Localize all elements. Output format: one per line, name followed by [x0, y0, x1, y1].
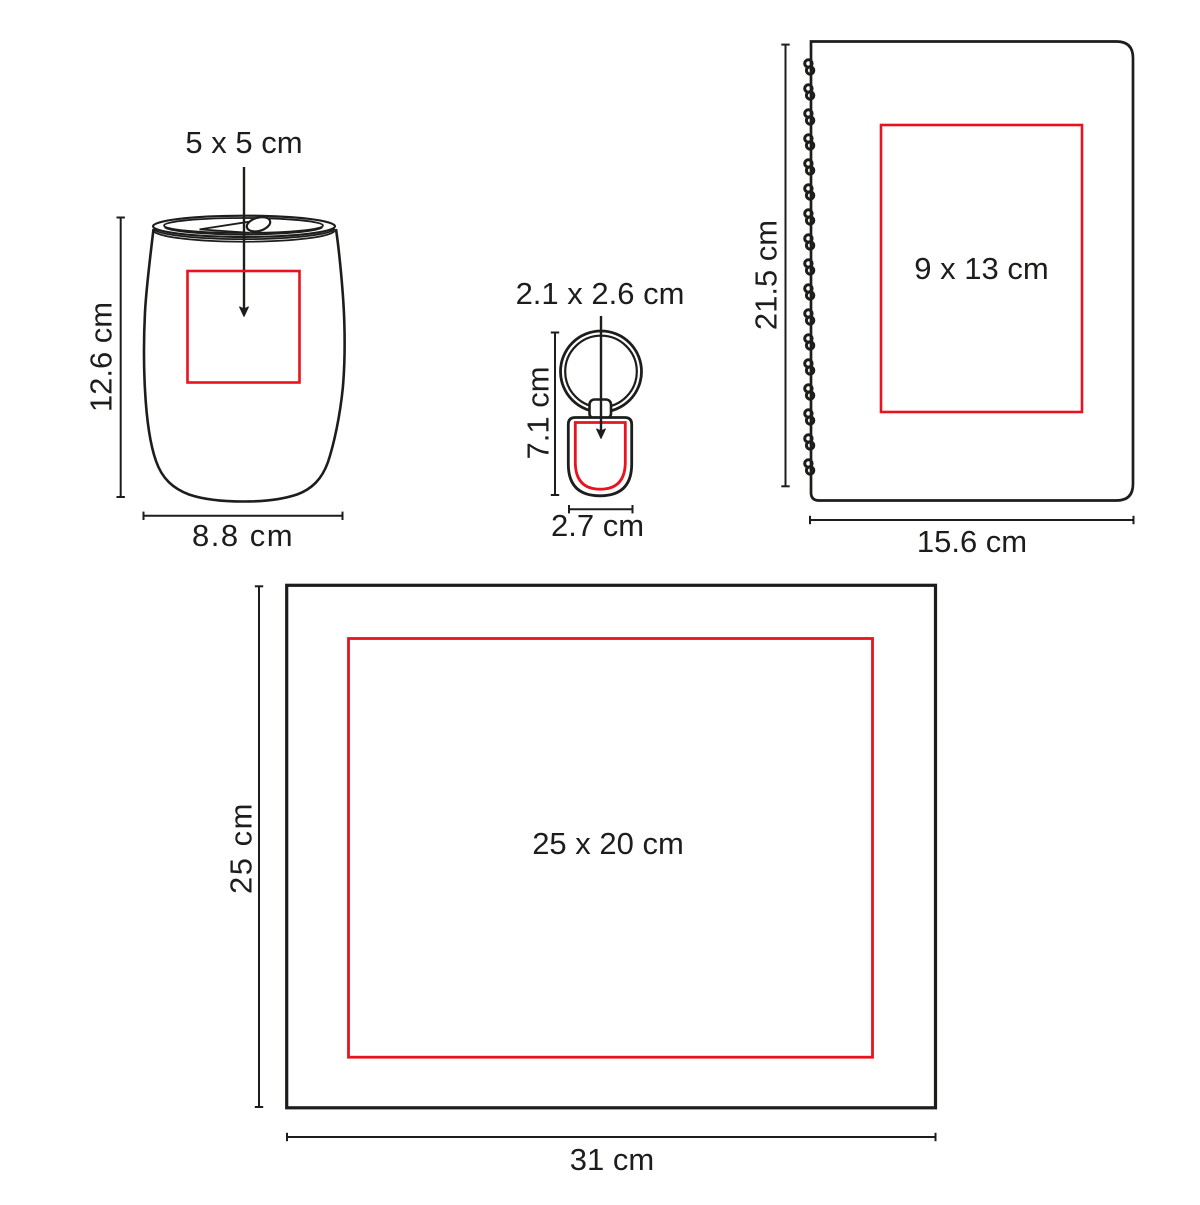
svg-text:15.6 cm: 15.6 cm	[917, 524, 1027, 559]
svg-text:8.8 cm: 8.8 cm	[192, 518, 294, 553]
svg-text:12.6 cm: 12.6 cm	[84, 302, 119, 412]
svg-text:5 x 5 cm: 5 x 5 cm	[185, 125, 302, 160]
svg-text:9 x 13 cm: 9 x 13 cm	[914, 251, 1048, 286]
svg-text:2.7 cm: 2.7 cm	[551, 508, 644, 543]
svg-text:7.1 cm: 7.1 cm	[521, 366, 556, 459]
svg-text:25 cm: 25 cm	[224, 802, 259, 894]
svg-text:25 x 20 cm: 25 x 20 cm	[532, 826, 684, 861]
svg-text:21.5 cm: 21.5 cm	[749, 220, 784, 330]
svg-text:31 cm: 31 cm	[570, 1142, 654, 1177]
svg-text:2.1 x 2.6 cm: 2.1 x 2.6 cm	[516, 276, 685, 311]
